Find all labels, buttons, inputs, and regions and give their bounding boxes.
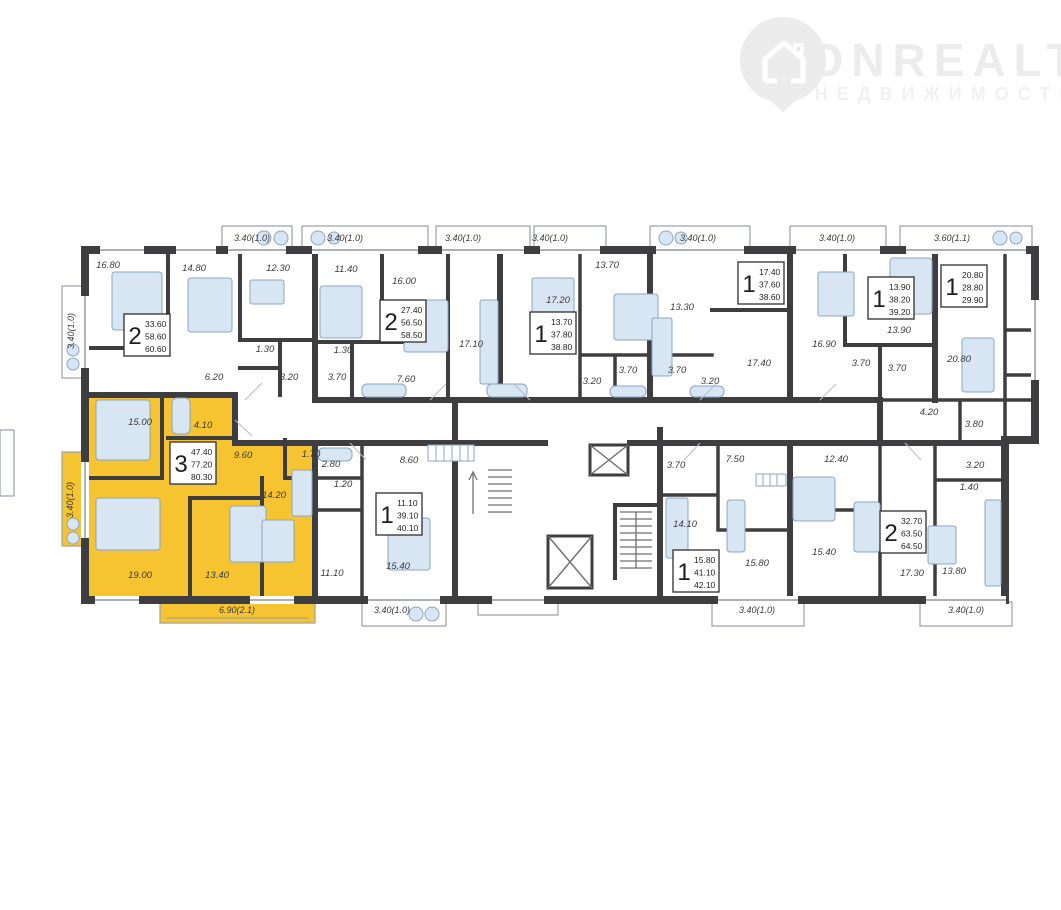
room-area-label: 13.70	[595, 260, 619, 271]
room-area-label: 3.70	[668, 365, 687, 376]
dimension-label: 3.40(1.0)	[66, 313, 76, 349]
room-area-label: 17.40	[747, 358, 771, 369]
room-area-label: 2.80	[321, 459, 341, 470]
svg-text:64.50: 64.50	[901, 541, 923, 551]
room-area-label: 3.70	[667, 460, 686, 471]
svg-text:1: 1	[677, 559, 690, 586]
apartment-info-tag: 232.7063.5064.50	[880, 511, 926, 553]
svg-text:58.50: 58.50	[401, 330, 423, 340]
room-area-label: 9.60	[234, 450, 253, 461]
dimension-label: 3.40(1.0)	[948, 605, 984, 615]
stair-elevator-core	[469, 445, 652, 588]
room-area-label: 15.40	[812, 547, 836, 558]
room-area-label: 17.20	[546, 295, 570, 306]
room-area-label: 11.10	[320, 568, 344, 579]
svg-text:1: 1	[945, 274, 958, 301]
floorplan-canvas: ONREALT НЕДВИЖИМОСТЬ	[0, 0, 1061, 910]
room-area-label: 3.20	[966, 460, 985, 471]
room-area-label: 3.20	[583, 376, 602, 387]
room-area-label: 15.80	[745, 558, 769, 569]
svg-text:37.60: 37.60	[759, 280, 781, 290]
dimension-label: 3.40(1.0)	[65, 482, 75, 518]
room-area-label: 14.10	[673, 519, 697, 530]
room-area-label: 8.60	[400, 455, 419, 466]
svg-text:56.50: 56.50	[401, 318, 423, 328]
dimension-label: 6.90(2.1)	[219, 605, 255, 615]
dimension-label: 3.40(1.0)	[234, 233, 270, 243]
dimension-label: 3.40(1.0)	[680, 233, 716, 243]
room-area-label: 6.20	[205, 372, 224, 383]
svg-text:41.10: 41.10	[694, 568, 716, 578]
svg-text:15.80: 15.80	[694, 555, 716, 565]
room-area-label: 14.80	[182, 263, 206, 274]
room-area-label: 17.30	[900, 568, 924, 579]
room-area-label: 12.40	[824, 454, 848, 465]
svg-text:39.10: 39.10	[397, 511, 419, 521]
room-area-label: 4.20	[920, 407, 939, 418]
svg-text:58.60: 58.60	[145, 332, 167, 342]
svg-text:2: 2	[384, 309, 397, 336]
svg-text:28.80: 28.80	[962, 283, 984, 293]
room-area-label: 16.90	[812, 339, 836, 350]
room-area-label: 20.80	[946, 354, 971, 365]
svg-text:1: 1	[872, 286, 885, 313]
room-area-label: 1.30	[334, 345, 353, 356]
svg-text:33.60: 33.60	[145, 319, 167, 329]
dimension-label: 3.60(1.1)	[934, 233, 970, 243]
svg-text:1: 1	[534, 321, 547, 348]
room-area-label: 1.70	[302, 449, 321, 460]
dimension-label: 3.40(1.0)	[739, 605, 775, 615]
dimension-label: 3.40(1.0)	[819, 233, 855, 243]
apartment-info-tag: 233.6058.6060.60	[124, 314, 170, 356]
room-area-label: 3.80	[965, 419, 984, 430]
room-area-label: 3.70	[619, 365, 638, 376]
room-area-label: 3.20	[280, 372, 299, 383]
svg-text:17.40: 17.40	[759, 267, 781, 277]
room-area-label: 4.10	[194, 420, 213, 431]
room-area-label: 12.30	[266, 263, 290, 274]
svg-text:38.80: 38.80	[551, 342, 573, 352]
svg-text:3: 3	[174, 451, 187, 478]
svg-text:20.80: 20.80	[962, 270, 984, 280]
svg-text:1: 1	[380, 502, 393, 529]
svg-text:39.20: 39.20	[889, 307, 911, 317]
apartment-info-tag: 111.1039.1040.10	[376, 493, 422, 535]
svg-text:37.80: 37.80	[551, 330, 573, 340]
svg-text:77.20: 77.20	[191, 460, 213, 470]
room-area-label: 7.60	[397, 374, 416, 385]
room-area-label: 1.40	[960, 482, 979, 493]
svg-text:11.10: 11.10	[397, 498, 418, 508]
svg-text:29.90: 29.90	[962, 295, 984, 305]
svg-text:63.50: 63.50	[901, 529, 923, 539]
room-area-label: 3.70	[328, 372, 347, 383]
room-area-label: 3.70	[852, 358, 871, 369]
svg-text:42.10: 42.10	[694, 580, 716, 590]
onrealt-watermark: ONREALT НЕДВИЖИМОСТЬ	[740, 17, 1061, 112]
dimension-label: 3.40(1.0)	[327, 233, 363, 243]
svg-text:38.60: 38.60	[759, 292, 781, 302]
room-area-label: 13.90	[887, 325, 911, 336]
room-area-label: 13.80	[942, 566, 966, 577]
apartment-info-tag: 113.9038.2039.20	[868, 277, 914, 319]
svg-text:40.10: 40.10	[397, 523, 419, 533]
highlighted-apartment-tag[interactable]: 347.4077.2080.30	[170, 442, 216, 484]
room-area-label: 13.30	[670, 302, 694, 313]
svg-text:2: 2	[884, 520, 897, 547]
room-area-label: 16.80	[96, 260, 120, 271]
svg-text:13.90: 13.90	[889, 282, 911, 292]
room-area-label: 3.70	[888, 363, 907, 374]
apartment-info-tag: 117.4037.6038.60	[738, 262, 784, 304]
room-area-label: 13.40	[205, 570, 229, 581]
svg-text:32.70: 32.70	[901, 516, 923, 526]
room-area-label: 3.20	[701, 376, 720, 387]
room-area-label: 15.40	[386, 561, 410, 572]
apartment-info-tag: 115.8041.1042.10	[673, 550, 719, 592]
svg-text:47.40: 47.40	[191, 447, 213, 457]
svg-text:80.30: 80.30	[191, 472, 213, 482]
dimension-label: 3.40(1.0)	[374, 605, 410, 615]
watermark-brand: ONREALT	[808, 34, 1061, 86]
room-area-label: 17.10	[459, 339, 483, 350]
room-area-label: 1.20	[334, 479, 353, 490]
room-area-label: 1.30	[256, 344, 275, 355]
room-area-label: 15.00	[128, 417, 152, 428]
watermark-subtitle: НЕДВИЖИМОСТЬ	[815, 84, 1061, 104]
svg-text:27.40: 27.40	[401, 305, 423, 315]
svg-text:2: 2	[128, 323, 141, 350]
svg-text:38.20: 38.20	[889, 295, 911, 305]
dimension-label: 3.40(1.0)	[445, 233, 481, 243]
floorplan-page: ONREALT НЕДВИЖИМОСТЬ	[0, 0, 1061, 910]
room-area-label: 11.40	[334, 264, 358, 275]
room-area-label: 14.20	[262, 490, 286, 501]
apartment-info-tag: 227.4056.5058.50	[380, 300, 426, 342]
apartment-info-tag: 113.7037.8038.80	[530, 312, 576, 354]
room-area-label: 16.00	[392, 276, 416, 287]
svg-text:13.70: 13.70	[551, 317, 573, 327]
room-area-label: 19.00	[128, 570, 152, 581]
room-area-label: 7.50	[726, 454, 745, 465]
apartment-info-tag: 120.8028.8029.90	[941, 265, 987, 307]
svg-text:60.60: 60.60	[145, 344, 167, 354]
svg-text:1: 1	[742, 271, 755, 298]
dimension-label: 3.40(1.0)	[532, 233, 568, 243]
